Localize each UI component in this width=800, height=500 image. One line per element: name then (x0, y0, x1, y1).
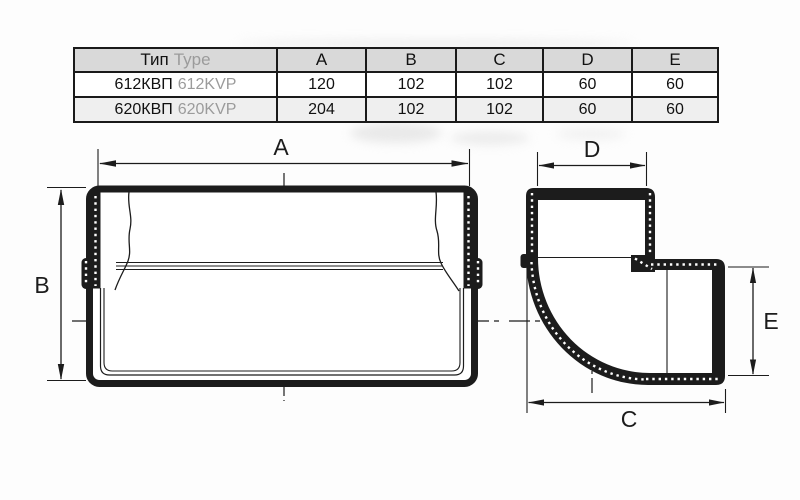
arrowhead (709, 399, 725, 405)
arrowhead (452, 160, 469, 166)
spec-sheet: ТипType A B C D E 612КВП612KVP 120 102 1… (0, 0, 800, 500)
front-view-drawing: A B (34, 134, 502, 401)
dim-label-c: C (621, 406, 638, 432)
arrowhead (99, 160, 116, 166)
arrowhead (630, 162, 646, 168)
inner-wall-left (93, 193, 101, 289)
arrowhead (750, 360, 756, 376)
arrowhead (750, 268, 756, 284)
technical-drawings: A B (0, 0, 800, 500)
dim-label-d: D (584, 136, 601, 162)
arrowhead (528, 399, 544, 405)
inner-wall-right (464, 193, 472, 289)
arrowhead (58, 364, 64, 380)
dim-label-e: E (763, 308, 778, 334)
arrowhead (539, 162, 555, 168)
dim-label-b: B (34, 272, 49, 298)
dim-label-a: A (273, 134, 289, 160)
arrowhead (58, 189, 64, 205)
elbow-view-drawing: D E C (509, 136, 779, 432)
duct-body-outline (90, 189, 475, 384)
